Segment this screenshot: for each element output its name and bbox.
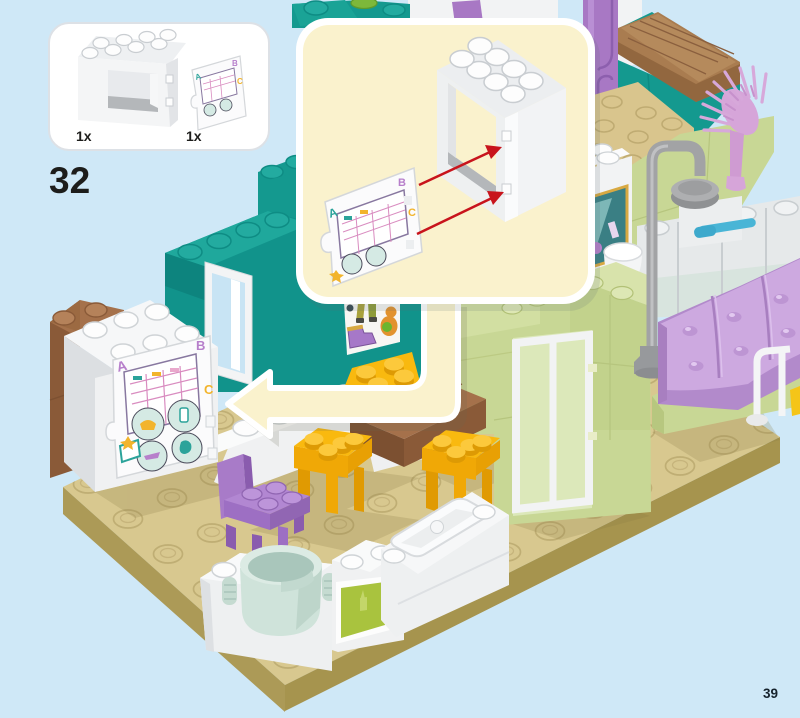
svg-text:B: B <box>398 177 406 189</box>
svg-text:1x: 1x <box>76 128 92 144</box>
svg-text:B: B <box>196 338 205 353</box>
svg-text:C: C <box>237 77 243 86</box>
svg-text:39: 39 <box>763 686 778 701</box>
svg-text:C: C <box>204 382 214 397</box>
svg-text:B: B <box>232 59 238 68</box>
svg-text:C: C <box>408 207 416 219</box>
svg-text:1x: 1x <box>186 128 202 144</box>
svg-text:32: 32 <box>49 160 90 201</box>
